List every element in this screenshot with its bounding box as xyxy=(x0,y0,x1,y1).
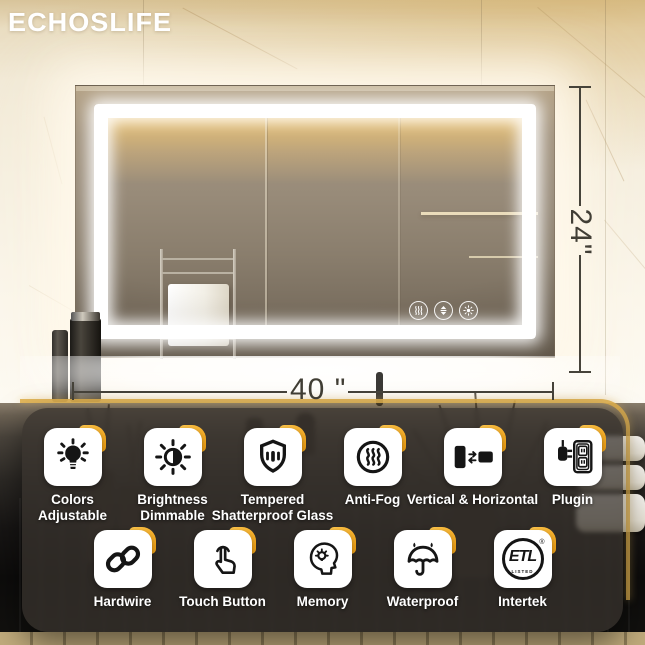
color-temp-touch-button[interactable] xyxy=(459,301,478,320)
memory-icon xyxy=(294,530,352,588)
height-dimension-cap xyxy=(569,371,591,373)
feature-label: Plugin xyxy=(473,492,645,508)
feature-hardwire: Hardwire xyxy=(73,530,173,588)
height-dimension-cap xyxy=(569,86,591,88)
chain-icon xyxy=(94,530,152,588)
features-panel: Colors Adjustable xyxy=(22,408,623,632)
etl-icon: ETL LISTED ® xyxy=(494,530,552,588)
feature-brightness-dimmable: Brightness Dimmable xyxy=(123,428,223,486)
height-dimension-label: 24" xyxy=(563,204,597,260)
umbrella-icon xyxy=(394,530,452,588)
features-row-1: Colors Adjustable xyxy=(22,428,623,486)
features-row-2: Hardwire Touch Button xyxy=(22,530,623,588)
orientation-icon xyxy=(444,428,502,486)
feature-touch-button: Touch Button xyxy=(173,530,273,588)
etl-ring: ETL LISTED ® xyxy=(502,538,544,580)
feature-anti-fog: Anti-Fog xyxy=(323,428,423,486)
width-dimension-line xyxy=(348,391,553,393)
etl-listed-text: LISTED xyxy=(505,569,541,574)
width-dimension-label: 40 " xyxy=(290,373,346,407)
feature-colors-adjustable: Colors Adjustable xyxy=(23,428,123,486)
feature-vertical-horizontal: Vertical & Horizontal xyxy=(423,428,523,486)
feature-tempered-glass: Tempered Shatterproof Glass xyxy=(223,428,323,486)
height-dimension-line xyxy=(579,255,581,372)
anti-fog-touch-button[interactable] xyxy=(409,301,428,320)
steam-icon xyxy=(344,428,402,486)
sun-glyph-icon xyxy=(463,305,474,316)
height-dimension-line xyxy=(579,87,581,206)
led-mirror xyxy=(75,85,555,358)
product-image: 40 " 24" xyxy=(0,0,645,645)
brightness-touch-button[interactable] xyxy=(434,301,453,320)
feature-waterproof: Waterproof xyxy=(373,530,473,588)
feature-memory: Memory xyxy=(273,530,373,588)
width-dimension-cap xyxy=(552,382,554,400)
steam-glyph-icon xyxy=(413,305,424,316)
feature-plugin: Plugin xyxy=(523,428,623,486)
marble-vein xyxy=(604,220,645,282)
width-dimension-line xyxy=(73,391,287,393)
plug-icon xyxy=(544,428,602,486)
registered-mark: ® xyxy=(539,539,544,546)
marble-vein xyxy=(182,8,297,70)
mirror-touch-controls xyxy=(409,301,478,320)
tile-seam xyxy=(481,0,482,86)
soap-grinder-cap xyxy=(71,312,100,321)
etl-text: ETL xyxy=(509,548,536,566)
feature-label: Intertek xyxy=(423,594,623,610)
dim-arrows-glyph-icon xyxy=(438,305,449,316)
brightness-icon xyxy=(144,428,202,486)
marble-vein xyxy=(43,117,62,185)
brand-logo: ECHOSLIFE xyxy=(8,7,172,38)
tile-seam xyxy=(605,0,606,395)
width-dimension-cap xyxy=(72,382,74,400)
bulb-icon xyxy=(44,428,102,486)
feature-intertek: ETL LISTED ® Intertek xyxy=(473,530,573,588)
shield-icon xyxy=(244,428,302,486)
touch-icon xyxy=(194,530,252,588)
lit-base-strip xyxy=(0,632,645,645)
